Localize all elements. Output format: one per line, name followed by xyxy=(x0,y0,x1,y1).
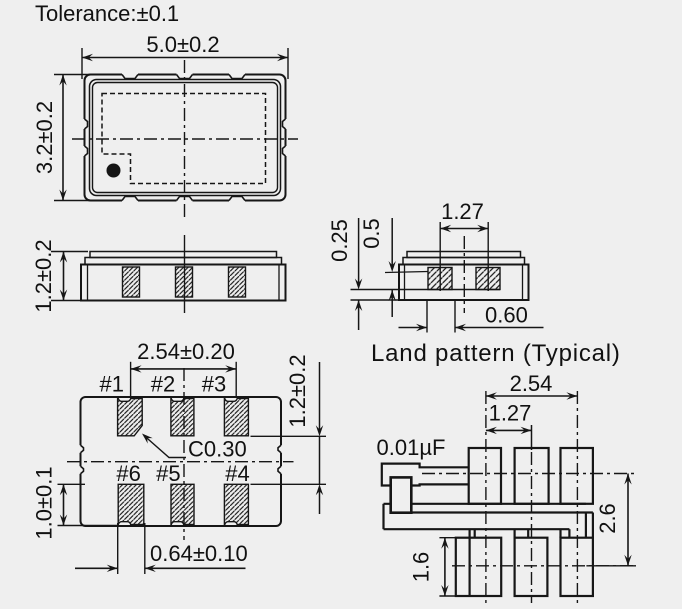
svg-text:#6: #6 xyxy=(116,461,140,486)
svg-text:#4: #4 xyxy=(225,461,249,486)
svg-text:C0.30: C0.30 xyxy=(188,437,247,462)
svg-text:0.60: 0.60 xyxy=(485,303,528,328)
svg-text:1.0±0.1: 1.0±0.1 xyxy=(32,466,57,539)
svg-text:3.2±0.2: 3.2±0.2 xyxy=(32,101,57,174)
svg-text:1.27: 1.27 xyxy=(441,199,484,224)
svg-text:0.01µF: 0.01µF xyxy=(377,435,446,460)
svg-text:5.0±0.2: 5.0±0.2 xyxy=(146,32,219,57)
svg-text:Land pattern (Typical): Land pattern (Typical) xyxy=(371,340,621,367)
svg-text:#1: #1 xyxy=(99,372,123,397)
svg-text:2.6: 2.6 xyxy=(595,503,620,534)
svg-text:#2: #2 xyxy=(151,372,175,397)
svg-text:#3: #3 xyxy=(202,372,226,397)
svg-text:2.54±0.20: 2.54±0.20 xyxy=(137,339,235,364)
svg-text:#5: #5 xyxy=(156,461,180,486)
svg-text:1.2±0.2: 1.2±0.2 xyxy=(31,239,56,312)
svg-text:1.6: 1.6 xyxy=(409,552,434,583)
svg-text:0.25: 0.25 xyxy=(327,219,352,262)
svg-text:1.27: 1.27 xyxy=(489,401,532,426)
svg-text:2.54: 2.54 xyxy=(510,371,553,396)
svg-text:0.5: 0.5 xyxy=(359,218,384,249)
svg-text:Tolerance:±0.1: Tolerance:±0.1 xyxy=(35,1,179,26)
svg-text:0.64±0.10: 0.64±0.10 xyxy=(150,541,248,566)
svg-text:1.2±0.2: 1.2±0.2 xyxy=(285,354,310,427)
